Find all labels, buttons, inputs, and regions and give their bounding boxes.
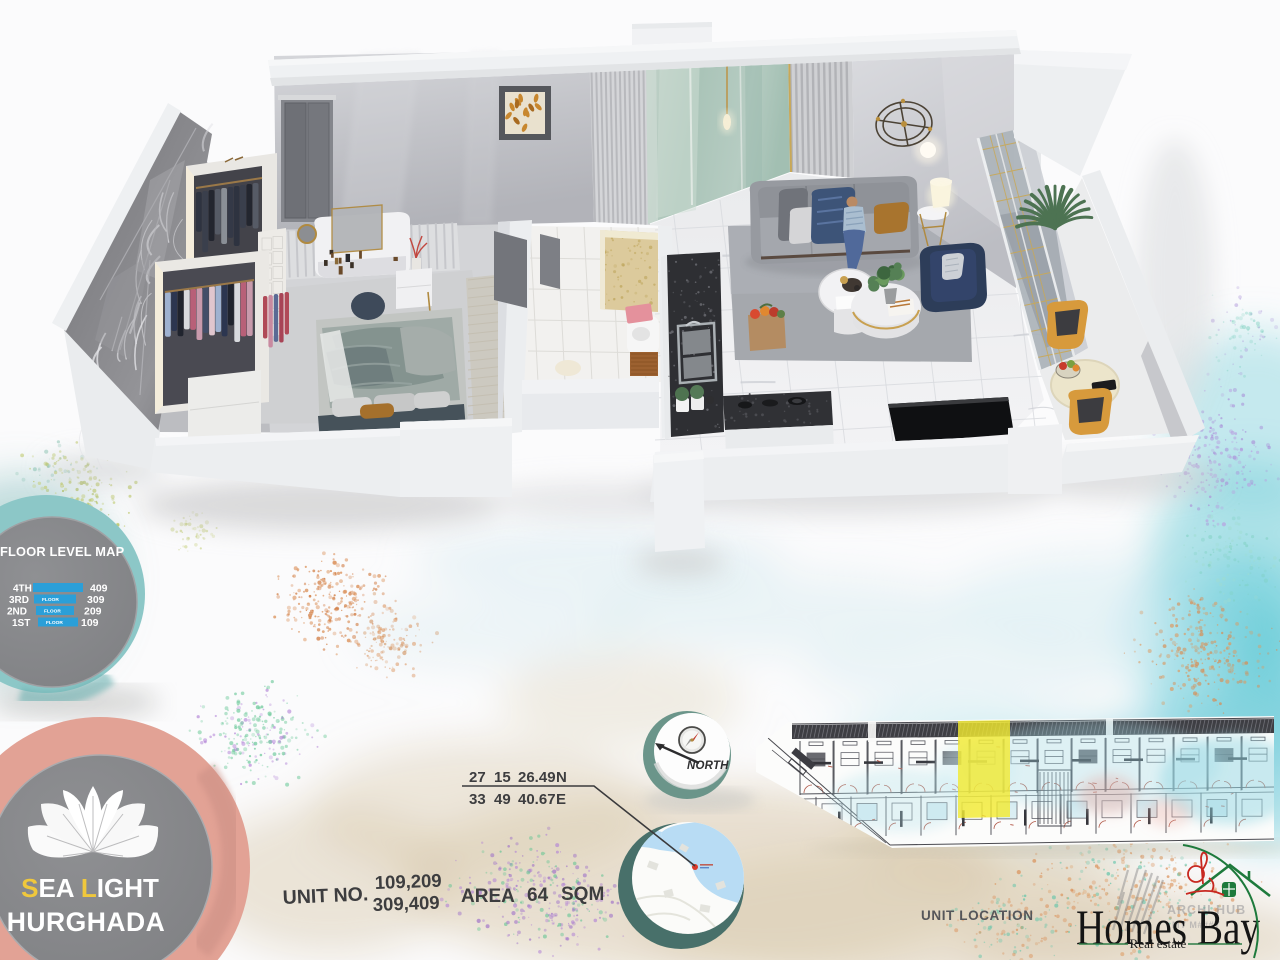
svg-text:40.67: 40.67 (518, 791, 556, 808)
svg-text:NORTH: NORTH (687, 760, 729, 772)
svg-text:N: N (556, 769, 567, 786)
svg-text:UNIT LOCATION: UNIT LOCATION (921, 908, 1034, 923)
svg-text:1ST: 1ST (12, 618, 30, 629)
svg-text:AREA: AREA (461, 886, 515, 907)
svg-text:15: 15 (494, 769, 511, 786)
svg-text:209: 209 (84, 606, 102, 618)
svg-text:109,209: 109,209 (374, 870, 442, 893)
svg-text:FLOOR LEVEL MAP: FLOOR LEVEL MAP (0, 544, 125, 559)
svg-text:FLOOR: FLOOR (42, 597, 59, 603)
svg-text:Real estate: Real estate (1130, 936, 1187, 951)
svg-text:SQM: SQM (561, 884, 604, 905)
svg-text:SEA LIGHT: SEA LIGHT (21, 873, 159, 903)
svg-text:HURGHADA: HURGHADA (7, 907, 166, 937)
svg-text:409: 409 (90, 583, 108, 595)
svg-text:UNIT NO.: UNIT NO. (282, 883, 368, 909)
svg-text:FLOOR: FLOOR (44, 609, 61, 615)
svg-text:4TH: 4TH (13, 584, 32, 595)
svg-text:309: 309 (87, 594, 105, 606)
svg-text:26.49: 26.49 (518, 769, 556, 786)
svg-text:109: 109 (81, 617, 99, 629)
svg-text:27: 27 (469, 769, 486, 786)
svg-text:3RD: 3RD (9, 595, 29, 606)
svg-text:49: 49 (494, 791, 511, 808)
svg-text:64: 64 (527, 885, 549, 906)
svg-text:FLOOR: FLOOR (46, 620, 63, 626)
svg-text:2ND: 2ND (7, 607, 27, 618)
svg-text:33: 33 (469, 791, 486, 808)
svg-text:E: E (556, 791, 566, 808)
svg-text:309,409: 309,409 (372, 892, 440, 915)
